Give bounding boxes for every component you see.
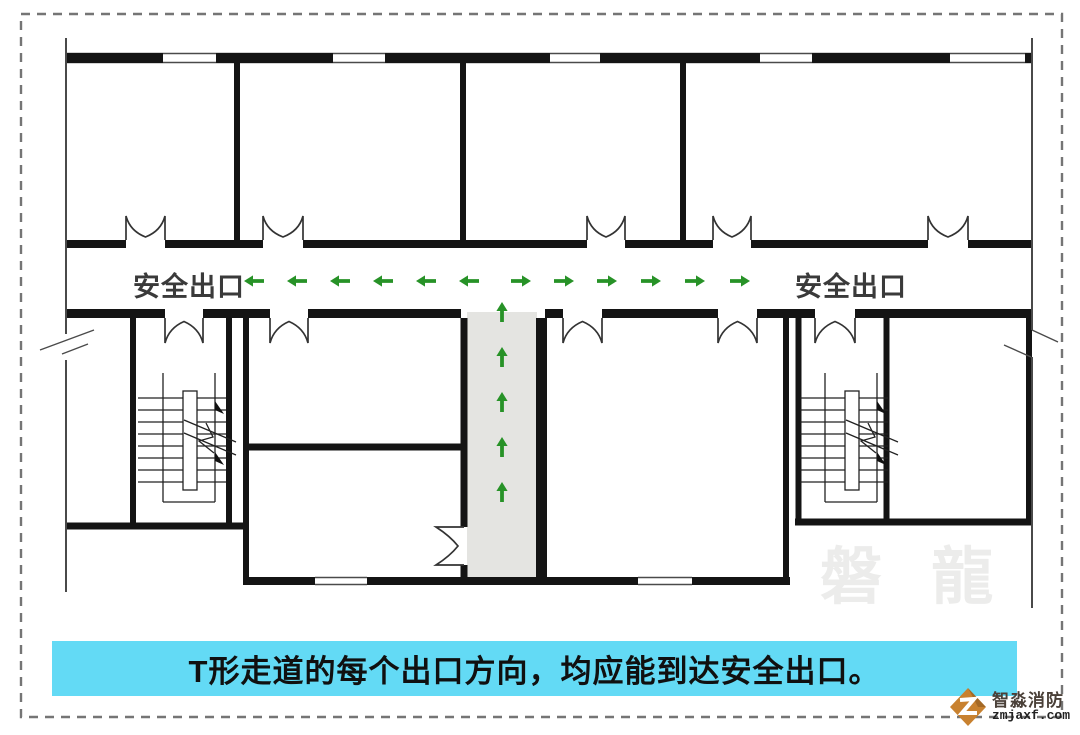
arrow-left — [330, 275, 350, 286]
arrow-left — [459, 275, 479, 286]
brand-logo: 智淼消防 zmjaxf.com — [948, 686, 1070, 728]
arrow-left — [416, 275, 436, 286]
arrow-right — [554, 275, 574, 286]
logo-name: 智淼消防 — [992, 692, 1070, 709]
caption-bar: T形走道的每个出口方向，均应能到达安全出口。 — [52, 641, 1017, 696]
arrow-right — [685, 275, 705, 286]
arrow-right — [730, 275, 750, 286]
arrow-left — [373, 275, 393, 286]
staircase-left — [138, 373, 236, 502]
floor-plan-figure: 安全出口 安全出口 磐 龍 T形走道的每个出口方向，均应能到达安全出口。 智淼消… — [0, 0, 1080, 735]
watermark-text: 磐 龍 — [820, 526, 1009, 616]
arrow-right — [641, 275, 661, 286]
safety-exit-label-left: 安全出口 — [124, 265, 254, 304]
logo-diamond-icon — [948, 686, 988, 728]
arrow-right — [511, 275, 531, 286]
arrow-left — [287, 275, 307, 286]
staircase-right — [800, 373, 898, 502]
safety-exit-label-right: 安全出口 — [786, 265, 916, 304]
floor-plan-drawing — [0, 0, 1080, 735]
logo-site: zmjaxf.com — [992, 709, 1070, 722]
caption-text: T形走道的每个出口方向，均应能到达安全出口。 — [189, 646, 881, 691]
arrow-right — [597, 275, 617, 286]
wall-break-symbols — [40, 330, 1058, 357]
walls — [40, 38, 1058, 608]
